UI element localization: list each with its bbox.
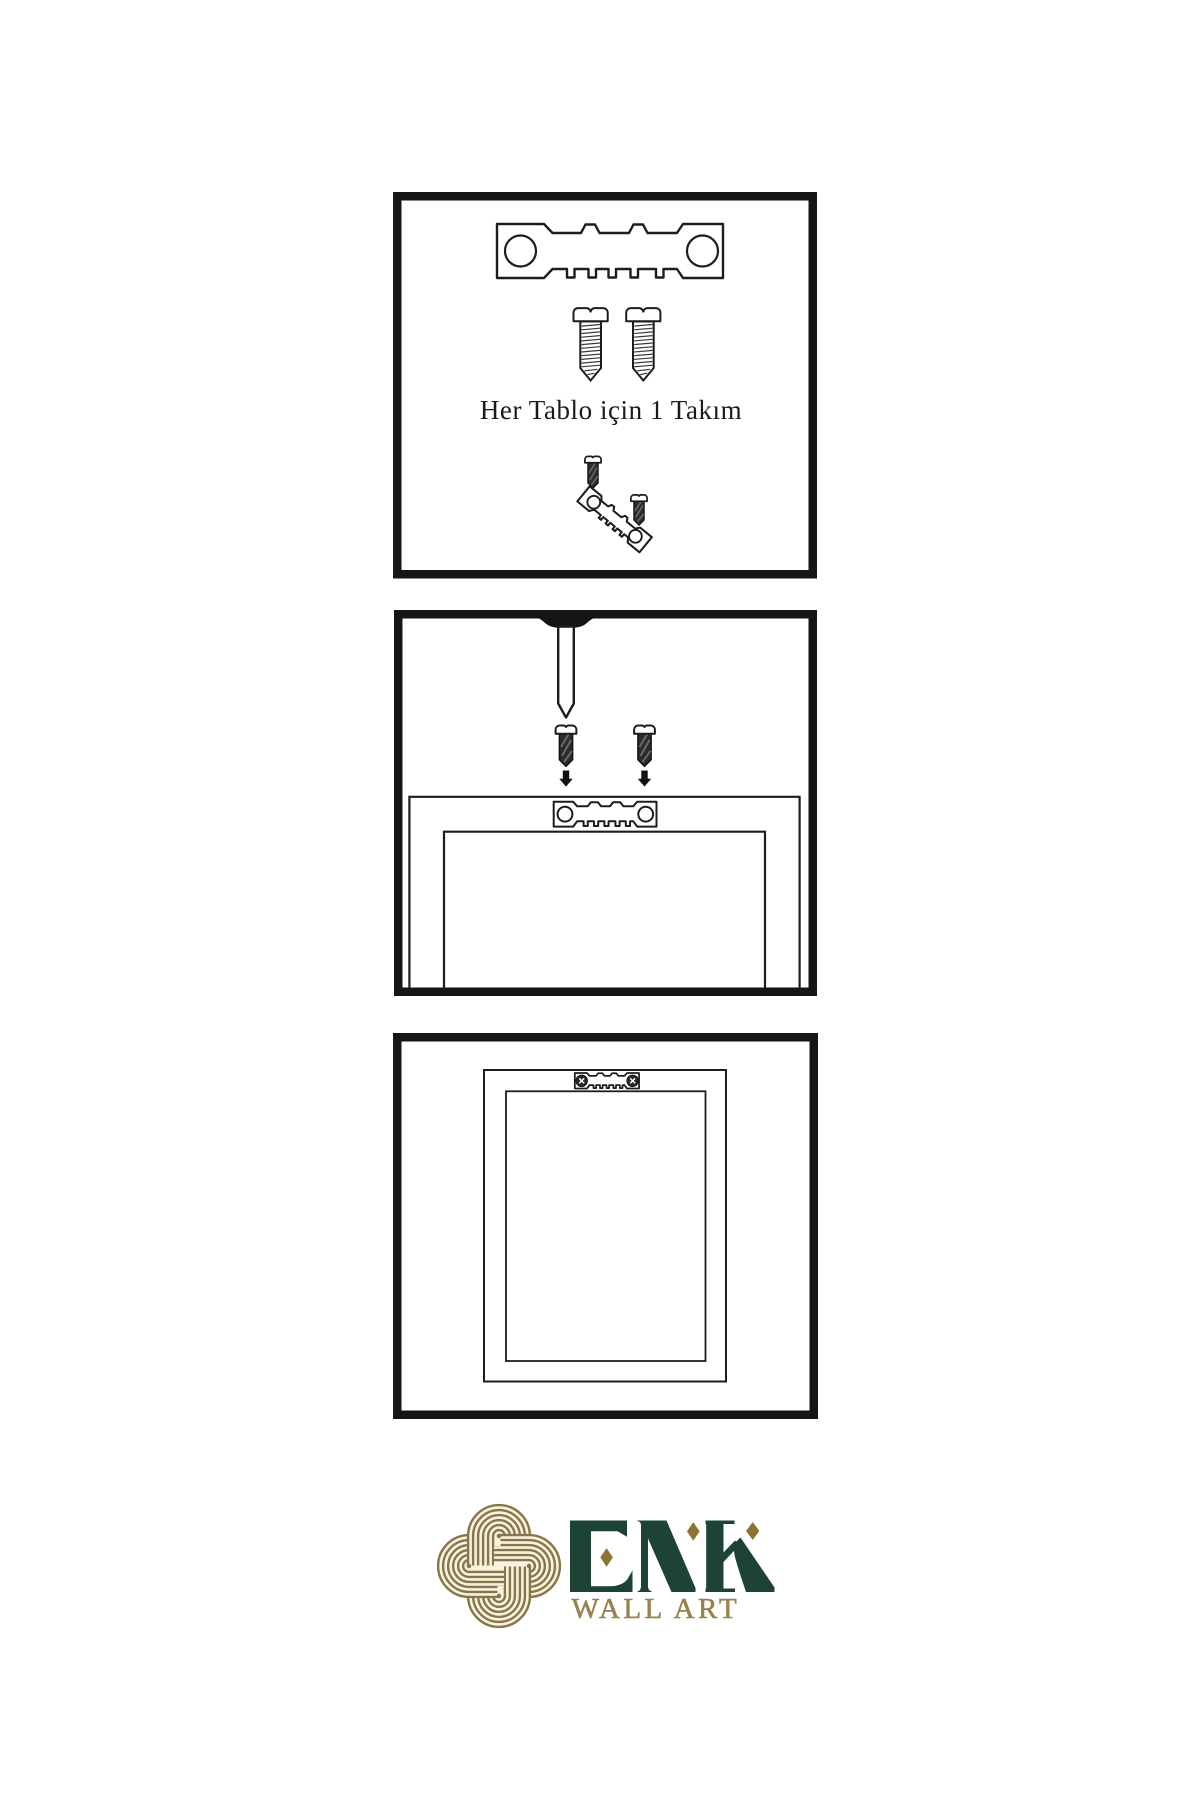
svg-text:Her Tablo için 1 Takım: Her Tablo için 1 Takım [480, 395, 742, 425]
svg-text:WALL ART: WALL ART [572, 1593, 741, 1625]
